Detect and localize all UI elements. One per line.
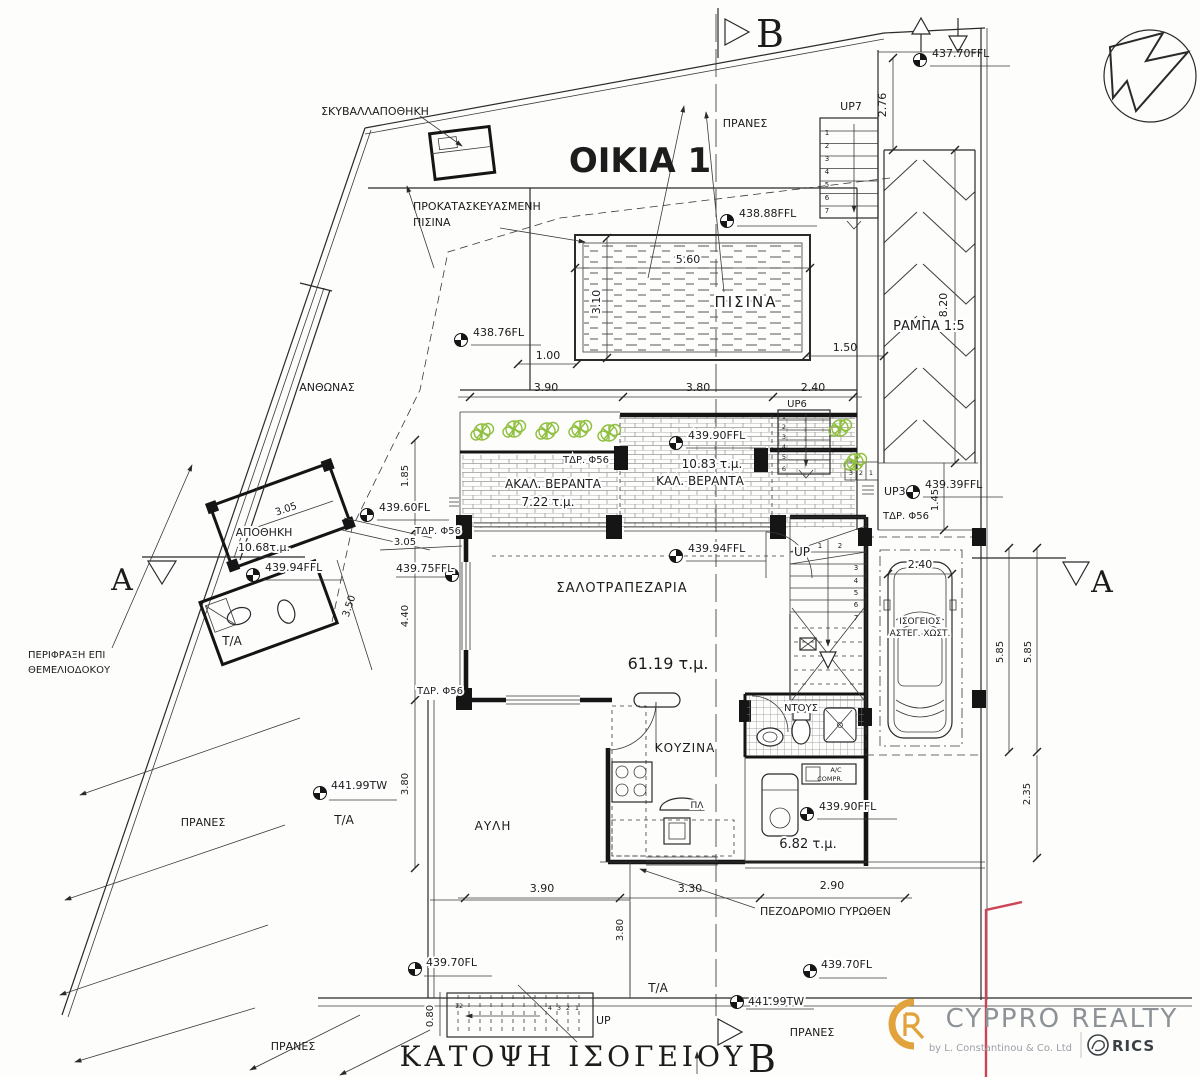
planter-label: ΑΝΘΩΝΑΣ: [299, 381, 355, 394]
slope-label-bottom-left: ΠΡΑΝΕΣ: [271, 1040, 316, 1053]
up6-tread-3: 3: [782, 433, 786, 441]
bottom-tread-2: 2: [566, 1004, 570, 1012]
bottom-tread-1: 1: [575, 1004, 579, 1012]
section-b-top-triangle: [725, 19, 749, 45]
storage-area: 10.68τ.μ.: [238, 541, 290, 554]
dim-5-85-a: 5.85: [995, 641, 1006, 663]
plant-icon: [598, 425, 621, 442]
parking-label-2: ΑΣΤΕΓ. ΧΩΣΤ.: [890, 629, 951, 639]
level-439-94-left: 439.94FFL: [265, 561, 323, 574]
kitchen-door-arc: [608, 702, 656, 750]
living-label: ΣΑΛΟΤΡΑΠΕΖΑΡΙΑ: [556, 581, 687, 596]
dim-3-10: 3.10: [590, 290, 603, 315]
utility-area: 6.82 τ.μ.: [779, 837, 836, 852]
up6-label: UP6: [787, 399, 807, 410]
up6-tread-6: 6: [782, 465, 786, 473]
dim-0-80: 0.80: [425, 1005, 436, 1027]
ramp-label: ΡΑΜΠΑ 1:5: [893, 319, 965, 334]
ac-label-1: A/C: [830, 766, 842, 774]
ac-label-2: COMPR.: [817, 775, 843, 783]
section-b-top-letter: B: [756, 12, 784, 56]
floor-plan-page: ΟΙΚΙΑ 1 ΠΡΑΝΕΣ ΣΚΥΒΑΛΛΑΠΟΘΗΚΗ UP7 437.70…: [0, 0, 1200, 1077]
plant-icon: [536, 423, 559, 440]
level-439-94-living: 439.94FFL: [688, 542, 746, 555]
level-439-90-utility: 439.90FFL: [819, 800, 877, 813]
slope-label-left: ΠΡΑΝΕΣ: [181, 816, 226, 829]
rics-icon: [1088, 1035, 1108, 1055]
bin-store-box: [430, 127, 495, 180]
dim-1-00: 1.00: [536, 349, 561, 362]
int-tread-1: 1: [818, 542, 822, 550]
section-a-left-triangle: [148, 561, 176, 584]
int-tread-5: 5: [854, 589, 858, 597]
level-439-70-left: 439.70FL: [426, 956, 478, 969]
ta-label-bottom: Τ/Α: [647, 981, 668, 995]
dim-3-80-bottom: 3.80: [615, 919, 626, 941]
dim-8-20: 8.20: [937, 293, 950, 318]
drain-label-1: ΤΔΡ. Φ56: [562, 455, 609, 466]
dim-3-90-top: 3.90: [534, 381, 559, 394]
up7-tread-5: 5: [825, 181, 829, 189]
up-bottom-label: UP: [596, 1014, 611, 1027]
up-interior-label: UP: [794, 545, 810, 559]
up3-tread-3: 3: [849, 469, 853, 477]
dim-3-80-left: 3.80: [400, 773, 411, 795]
pool-note-2: ΠΙΣΙΝΑ: [413, 216, 451, 229]
bin-store-label: ΣΚΥΒΑΛΛΑΠΟΘΗΚΗ: [321, 105, 429, 118]
pool-note-1: ΠΡΟΚΑΤΑΣΚΕΥΑΣΜΕΝΗ: [413, 200, 541, 213]
ta-label-mid: Τ/Α: [333, 813, 354, 827]
dim-1-85: 1.85: [400, 465, 411, 487]
car-icon: [884, 562, 956, 738]
pool-label: ΠΙΣΙΝΑ: [714, 293, 777, 311]
level-438-76: 438.76FL: [473, 326, 525, 339]
fence-note-2: ΘΕΜΕΛΙΟΔΟΚΟΥ: [28, 665, 111, 676]
level-439-70-right: 439.70FL: [821, 958, 873, 971]
storage-label: ΑΠΟΘΗΚΗ: [236, 526, 293, 539]
stair-bottom: [447, 985, 593, 1042]
planter-bump: [634, 693, 680, 707]
dim-2-76: 2.76: [876, 93, 889, 118]
level-439-75: 439.75FFL: [396, 562, 454, 575]
up6-tread-5: 5: [782, 453, 786, 461]
slope-label-top: ΠΡΑΝΕΣ: [723, 117, 768, 130]
up7-tread-6: 6: [825, 194, 830, 202]
bottom-tread-12: 12: [455, 1002, 463, 1010]
floor-plan-svg: ΟΙΚΙΑ 1 ΠΡΑΝΕΣ ΣΚΥΒΑΛΛΑΠΟΘΗΚΗ UP7 437.70…: [0, 0, 1200, 1077]
uncov-veranda-area: 7.22 τ.μ.: [521, 495, 574, 509]
int-tread-3: 3: [854, 564, 858, 572]
dim-3-80-top: 3.80: [686, 381, 711, 394]
ta-label-left: Τ/Α: [221, 634, 242, 648]
rics-label: RICS: [1112, 1037, 1155, 1055]
drain-label-2: ΤΔΡ. Φ56: [882, 511, 929, 522]
dim-3-90-bottom: 3.90: [530, 882, 555, 895]
storage-block: [200, 283, 432, 665]
level-441-99-left: 441.99TW: [331, 779, 387, 792]
parking-label-1: ΙΣΟΓΕΙΟΣ: [899, 617, 941, 627]
int-tread-6: 6: [854, 601, 859, 609]
cyppro-logo: CYPPRO REALTY by L. Constantinou & Co. L…: [892, 1002, 1178, 1058]
fence-note-1: ΠΕΡΙΦΡΑΞΗ ΕΠΙ: [28, 650, 105, 661]
section-a-right-triangle: [1063, 562, 1089, 585]
window-west: [462, 562, 470, 650]
level-437-70: 437.70FFL: [932, 47, 990, 60]
sink-icon: [664, 818, 690, 844]
living-area: 61.19 τ.μ.: [628, 654, 709, 673]
dim-2-40-top: 2.40: [801, 381, 826, 394]
dim-3-30: 3.30: [678, 882, 703, 895]
up3-tread-2: 2: [859, 469, 863, 477]
dim-5-85-b: 5.85: [1023, 641, 1034, 663]
level-439-90-veranda: 439.90FFL: [688, 429, 746, 442]
house-title: ΟΙΚΙΑ 1: [569, 141, 711, 181]
drain-label-3: ΤΔΡ. Φ56: [414, 526, 461, 537]
dim-5-60: 5.60: [676, 253, 701, 266]
plan-title: ΚΑΤΟΨΗ ΙΣΟΓΕΙΟΥ: [400, 1040, 747, 1073]
section-a-left-letter: A: [110, 563, 133, 598]
up3-label: UP3: [884, 485, 906, 498]
planter-strip: [240, 290, 330, 560]
up7-tread-2: 2: [825, 142, 829, 150]
dim-3-50: 3.50: [341, 594, 358, 619]
plant-icon: [471, 424, 494, 441]
plant-icon: [569, 421, 592, 438]
dim-1-45: 1.45: [930, 489, 941, 511]
bottom-tread-3: 3: [557, 1004, 561, 1012]
sidewalk-label: ΠΕΖΟΔΡΟΜΙΟ ΓΥΡΩΘΕΝ: [760, 905, 891, 918]
up6-tread-1: 1: [782, 413, 786, 421]
left-bathroom: [200, 561, 337, 665]
level-439-60: 439.60FL: [379, 501, 431, 514]
dim-3-05-storage: 3.05: [274, 501, 299, 519]
dim-1-50: 1.50: [833, 341, 858, 354]
dim-2-90: 2.90: [820, 879, 845, 892]
drain-label-4: ΤΔΡ. Φ56: [416, 686, 463, 697]
shower-label: ΝΤΟΥΣ: [784, 703, 818, 714]
up7-tread-3: 3: [825, 155, 829, 163]
brand-name: CYPPRO REALTY: [946, 1004, 1179, 1034]
bottom-tread-4: 4: [548, 1004, 552, 1012]
level-438-88: 438.88FFL: [739, 207, 797, 220]
yard-label: ΑΥΛΗ: [475, 819, 512, 833]
level-441-99-bottom: 441.99TW: [748, 995, 804, 1008]
ramp: [878, 50, 981, 530]
kitchen-label: ΚΟΥΖΙΝΑ: [655, 741, 716, 755]
brand-byline: by L. Constantinou & Co. Ltd: [929, 1043, 1072, 1054]
up7-tread-4: 4: [825, 168, 830, 176]
pool-note-leader: [500, 228, 585, 242]
window-south: [506, 696, 580, 704]
dim-4-40: 4.40: [400, 605, 411, 627]
plant-icon: [503, 421, 526, 438]
up7-tread-7: 7: [825, 207, 829, 215]
up6-tread-2: 2: [782, 423, 786, 431]
boiler-icon: [762, 774, 798, 836]
dim-2-40-garage: 2.40: [908, 558, 933, 571]
int-tread-7: 7: [854, 614, 858, 622]
cov-veranda-area: 10.83 τ.μ.: [682, 457, 743, 471]
basin-label: ΠΛ: [691, 801, 705, 811]
slope-label-bottom-right: ΠΡΑΝΕΣ: [790, 1026, 835, 1039]
cov-veranda-label: ΚΑΛ. ΒΕΡΑΝΤΑ: [656, 474, 744, 488]
up7-tread-1: 1: [825, 129, 829, 137]
uncov-veranda-label: ΑΚΑΛ. ΒΕΡΑΝΤΑ: [505, 477, 602, 491]
up3-tread-1: 1: [869, 469, 873, 477]
dim-3-05-b: 3.05: [394, 537, 416, 548]
section-a-right-letter: A: [1090, 565, 1113, 600]
cyppro-logo-icon: [892, 1002, 923, 1046]
int-tread-2: 2: [838, 542, 842, 550]
int-tread-4: 4: [854, 577, 859, 585]
north-arrow-icon: [1104, 30, 1196, 122]
up6-tread-4: 4: [782, 443, 786, 451]
dim-2-35: 2.35: [1022, 783, 1033, 805]
section-b-bottom-letter: B: [748, 1037, 776, 1077]
up7-label: UP7: [840, 100, 862, 113]
